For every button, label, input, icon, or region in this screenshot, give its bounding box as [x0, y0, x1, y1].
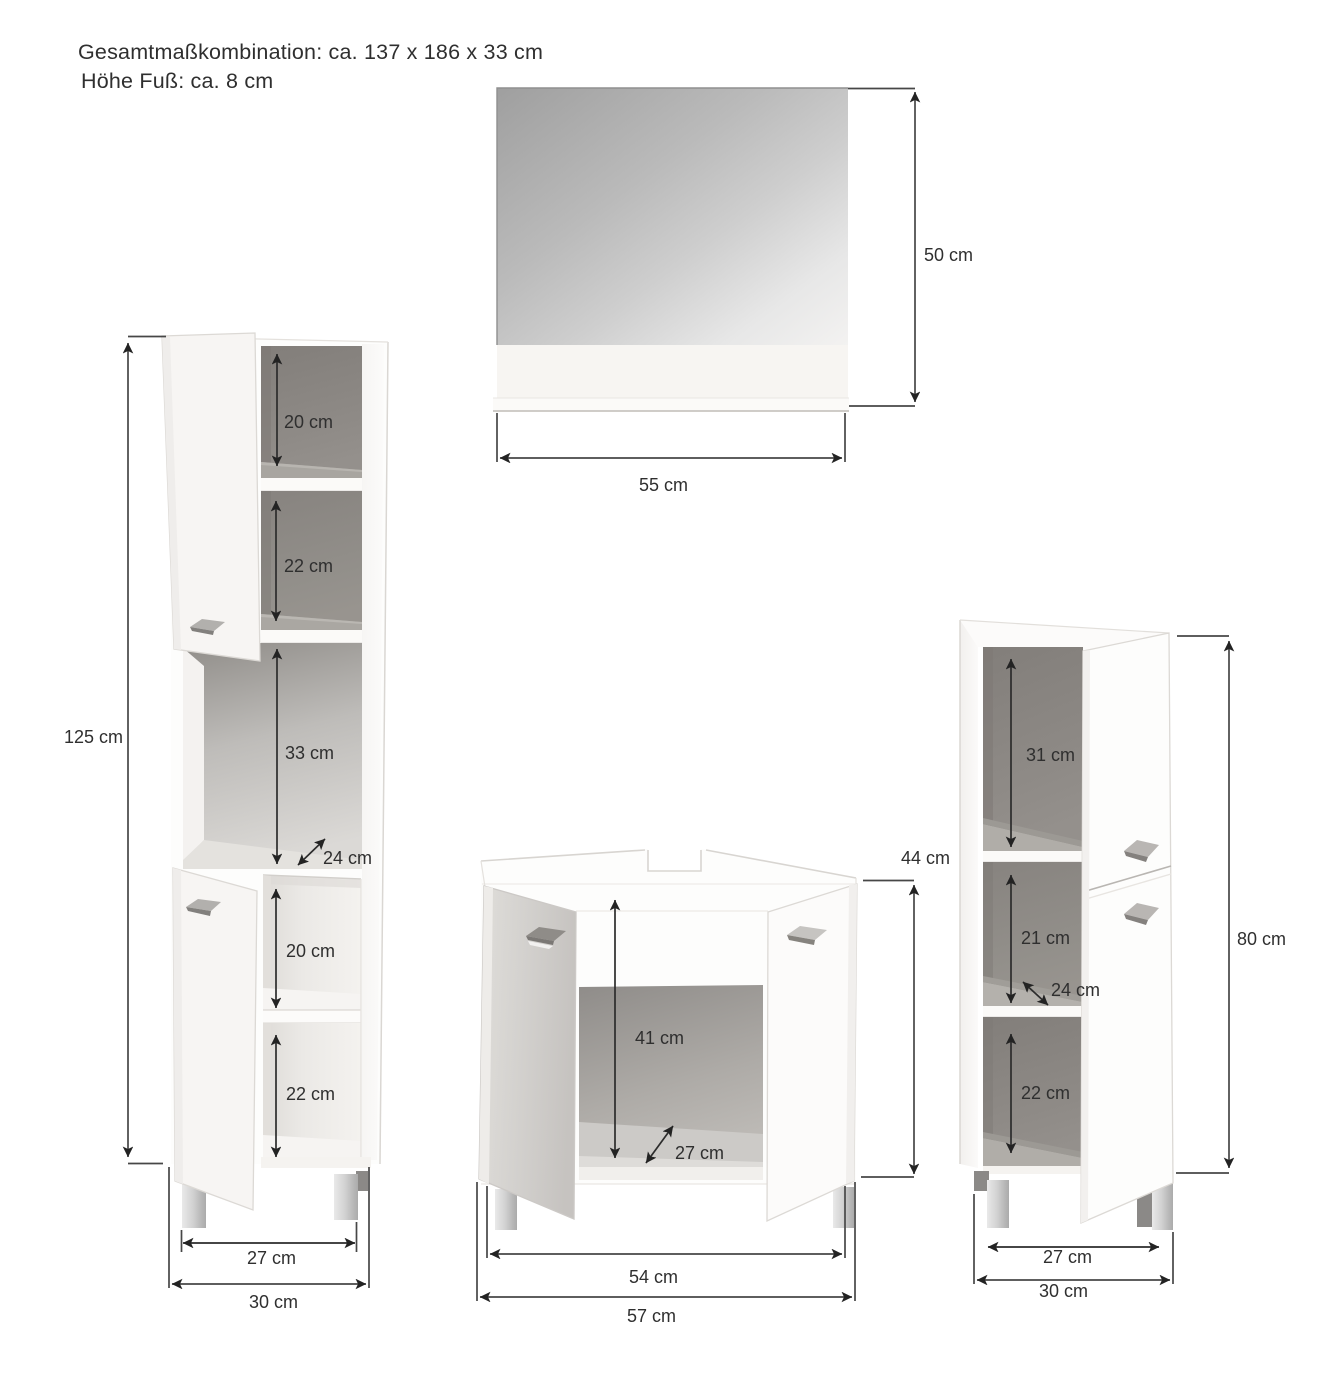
svg-text:30 cm: 30 cm — [249, 1292, 298, 1312]
svg-text:80 cm: 80 cm — [1237, 929, 1286, 949]
svg-text:55 cm: 55 cm — [639, 475, 688, 495]
svg-text:54 cm: 54 cm — [629, 1267, 678, 1287]
svg-text:30 cm: 30 cm — [1039, 1281, 1088, 1301]
svg-text:27 cm: 27 cm — [675, 1143, 724, 1163]
svg-text:125 cm: 125 cm — [64, 727, 123, 747]
svg-text:27 cm: 27 cm — [1043, 1247, 1092, 1267]
svg-text:22 cm: 22 cm — [1021, 1083, 1070, 1103]
svg-text:50 cm: 50 cm — [924, 245, 973, 265]
svg-text:22 cm: 22 cm — [284, 556, 333, 576]
svg-text:20 cm: 20 cm — [286, 941, 335, 961]
svg-text:20 cm: 20 cm — [284, 412, 333, 432]
svg-text:27 cm: 27 cm — [247, 1248, 296, 1268]
svg-text:41 cm: 41 cm — [635, 1028, 684, 1048]
svg-text:31 cm: 31 cm — [1026, 745, 1075, 765]
svg-text:44 cm: 44 cm — [901, 848, 950, 868]
svg-text:24 cm: 24 cm — [323, 848, 372, 868]
svg-text:Gesamtmaßkombination: ca. 137: Gesamtmaßkombination: ca. 137 x 186 x 33… — [78, 40, 543, 64]
svg-text:33 cm: 33 cm — [285, 743, 334, 763]
svg-text:57 cm: 57 cm — [627, 1306, 676, 1326]
svg-text:Höhe Fuß: ca. 8 cm: Höhe Fuß: ca. 8 cm — [81, 69, 273, 93]
svg-text:21 cm: 21 cm — [1021, 928, 1070, 948]
svg-text:22 cm: 22 cm — [286, 1084, 335, 1104]
svg-text:24 cm: 24 cm — [1051, 980, 1100, 1000]
